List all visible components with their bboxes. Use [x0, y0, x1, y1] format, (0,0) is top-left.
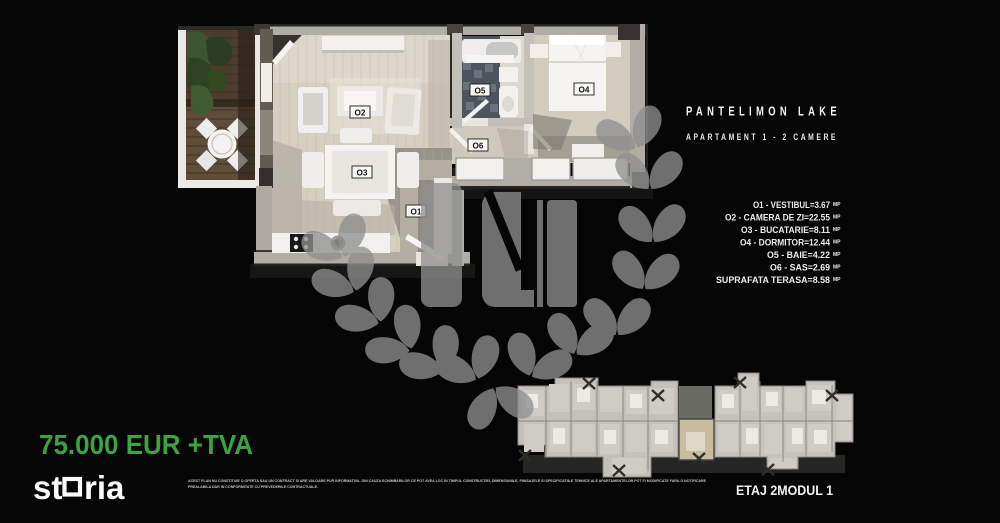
svg-text:O3: O3 — [357, 169, 368, 178]
svg-text:O3 - BUCATARIE=8.11: O3 - BUCATARIE=8.11 — [741, 225, 830, 235]
svg-text:O1: O1 — [411, 208, 422, 217]
svg-text:MP: MP — [833, 202, 841, 208]
svg-text:75.000 EUR +TVA: 75.000 EUR +TVA — [39, 429, 253, 460]
svg-text:ria: ria — [84, 469, 125, 506]
svg-text:ACEST PLAN NU CONSTITUIE O OFE: ACEST PLAN NU CONSTITUIE O OFERTA SAU UN… — [188, 479, 707, 483]
svg-text:ETAJ 2MODUL 1: ETAJ 2MODUL 1 — [736, 482, 833, 498]
svg-text:MP: MP — [833, 215, 841, 221]
svg-text:O1 - VESTIBUL=3.67: O1 - VESTIBUL=3.67 — [753, 200, 830, 210]
svg-text:APARTAMENT 1 - 2 CAMERE: APARTAMENT 1 - 2 CAMERE — [686, 132, 838, 142]
svg-text:O5: O5 — [475, 87, 486, 96]
svg-text:MP: MP — [833, 227, 841, 233]
svg-text:PANTELIMON LAKE: PANTELIMON LAKE — [686, 104, 841, 119]
svg-text:PREALABILA DAR IN CONFORMITATE: PREALABILA DAR IN CONFORMITATE CU PREVED… — [188, 485, 318, 489]
svg-text:O6 - SAS=2.69: O6 - SAS=2.69 — [770, 263, 830, 273]
svg-text:SUPRAFATA TERASA=8.58: SUPRAFATA TERASA=8.58 — [716, 275, 830, 285]
svg-text:O6: O6 — [473, 142, 484, 151]
svg-text:st: st — [33, 469, 62, 506]
svg-text:O4: O4 — [579, 86, 590, 95]
svg-text:MP: MP — [833, 277, 841, 283]
svg-text:O4 - DORMITOR=12.44: O4 - DORMITOR=12.44 — [740, 238, 830, 248]
svg-text:MP: MP — [833, 252, 841, 258]
svg-text:O5 - BAIE=4.22: O5 - BAIE=4.22 — [767, 250, 830, 260]
svg-text:MP: MP — [833, 265, 841, 271]
svg-text:MP: MP — [833, 240, 841, 246]
svg-text:O2 - CAMERA DE ZI=22.55: O2 - CAMERA DE ZI=22.55 — [725, 213, 830, 223]
svg-text:O2: O2 — [355, 109, 366, 118]
